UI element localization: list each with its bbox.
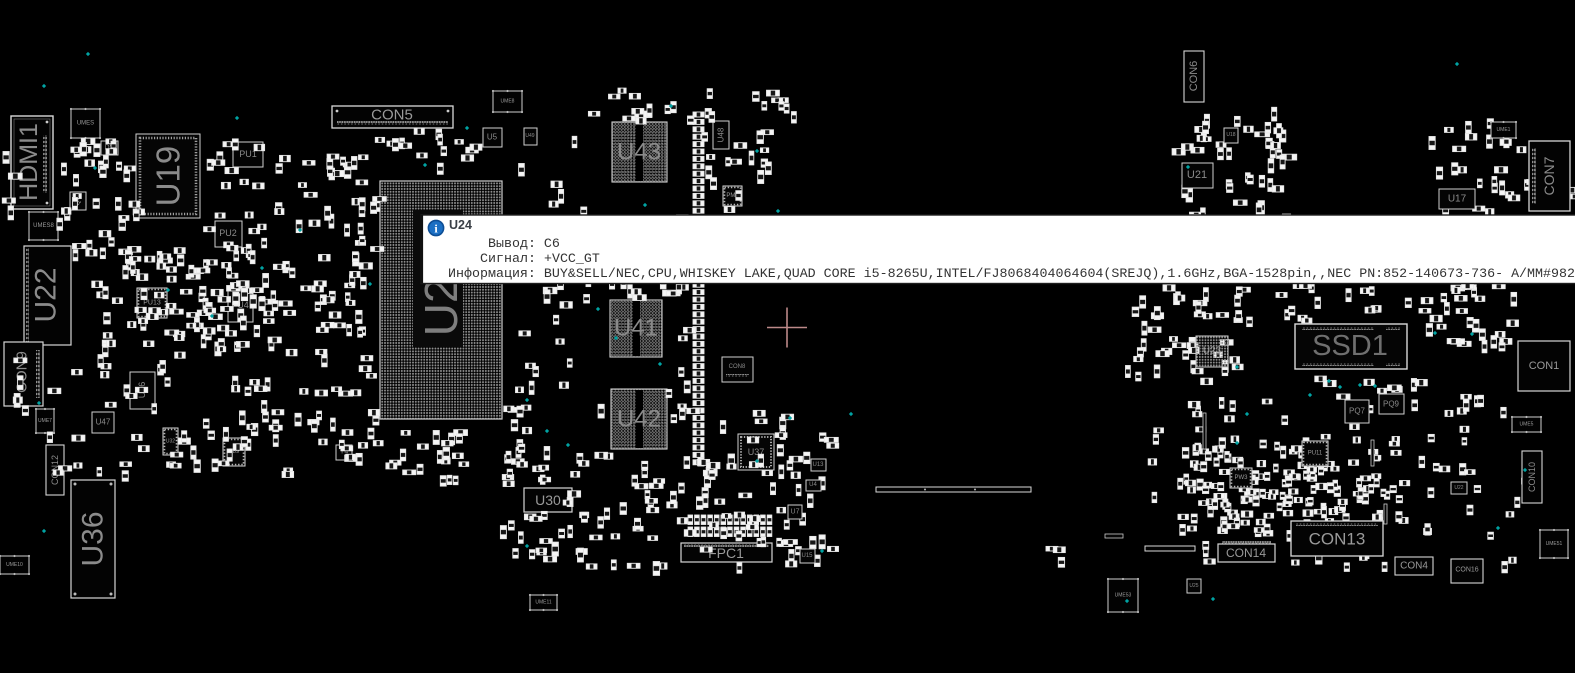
svg-text:PW3: PW3 [1234, 475, 1248, 481]
svg-text:U17: U17 [1448, 194, 1467, 205]
svg-text:CON13: CON13 [1309, 530, 1366, 549]
svg-text:CON7: CON7 [1541, 156, 1557, 195]
svg-text:U22: U22 [1454, 485, 1463, 491]
svg-text:HDMI1: HDMI1 [15, 123, 43, 201]
svg-text:CON6: CON6 [1188, 61, 1200, 92]
svg-text:PQ9: PQ9 [1383, 400, 1400, 409]
svg-text:CON16: CON16 [1455, 567, 1478, 574]
svg-text:UME1: UME1 [1497, 127, 1511, 133]
svg-text:PQ7: PQ7 [1349, 407, 1366, 416]
svg-text:U24: U24 [449, 218, 472, 232]
svg-text:Вывод: C6: Вывод: C6 [488, 236, 560, 251]
svg-text:U47: U47 [96, 418, 111, 427]
svg-text:UME7: UME7 [38, 418, 52, 424]
svg-text:U49: U49 [525, 133, 534, 139]
svg-text:CON5: CON5 [371, 107, 413, 124]
svg-text:U48: U48 [717, 127, 726, 142]
svg-text:PU11: PU11 [1308, 451, 1323, 457]
svg-text:U7: U7 [791, 509, 800, 516]
svg-text:UME51: UME51 [1546, 541, 1563, 547]
svg-text:U5: U5 [487, 133, 498, 142]
svg-text:UME10: UME10 [6, 562, 23, 568]
svg-text:U36: U36 [77, 511, 110, 566]
svg-text:Сигнал: +VCC_GT: Сигнал: +VCC_GT [480, 251, 600, 266]
svg-text:U30: U30 [535, 492, 561, 508]
svg-text:UMES8: UMES8 [33, 223, 54, 229]
svg-text:UME53: UME53 [1115, 593, 1132, 599]
svg-text:U42: U42 [617, 406, 661, 433]
svg-text:CON4: CON4 [1400, 561, 1428, 572]
svg-text:U25: U25 [1189, 583, 1198, 589]
svg-text:UME8: UME8 [501, 99, 515, 105]
svg-text:U4: U4 [809, 482, 817, 488]
svg-text:U41: U41 [614, 315, 658, 342]
svg-text:U23: U23 [1203, 346, 1222, 357]
svg-text:U43: U43 [617, 139, 661, 166]
svg-text:SSD1: SSD1 [1312, 330, 1388, 362]
svg-text:FPC1: FPC1 [708, 545, 744, 561]
svg-text:UME11: UME11 [535, 600, 552, 606]
svg-text:CON14: CON14 [1226, 546, 1266, 560]
svg-text:U21: U21 [1187, 169, 1207, 181]
svg-text:U18: U18 [1226, 132, 1235, 138]
svg-text:U32: U32 [166, 439, 175, 445]
svg-text:U13: U13 [812, 462, 824, 468]
svg-text:UMES: UMES [77, 121, 94, 127]
svg-text:CON10: CON10 [1527, 462, 1537, 492]
svg-text:PU13: PU13 [143, 300, 161, 307]
svg-text:U19: U19 [150, 146, 187, 207]
svg-text:PU2: PU2 [219, 228, 237, 238]
svg-text:UME5: UME5 [1520, 422, 1534, 428]
svg-text:U22: U22 [30, 267, 63, 322]
svg-text:Информация: BUY&SELL/NEC,CPU,W: Информация: BUY&SELL/NEC,CPU,WHISKEY LAK… [448, 266, 1575, 281]
svg-text:U15: U15 [801, 553, 813, 559]
svg-text:CON8: CON8 [729, 364, 746, 370]
svg-text:CON1: CON1 [1529, 360, 1560, 372]
